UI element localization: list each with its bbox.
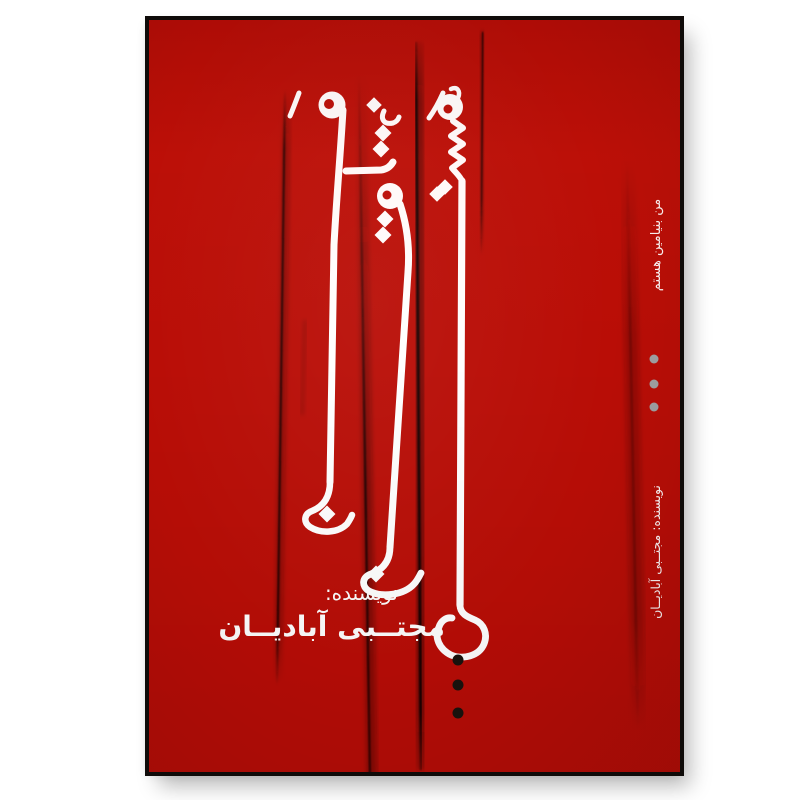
calligraphy-mid-bar [346,162,393,171]
book-cover-poster: من بنیامین هستم نویسنده: مجتــبی آبادیــ… [149,20,680,772]
calligraphy-mid-hook [382,111,399,123]
calligraphy-left-bowl [305,482,352,532]
calligraphy-mid-stroke [390,204,409,547]
calligraphy-right-stroke [460,181,462,605]
calligraphy-left-stroke [330,110,343,482]
calligraphy-right-teeth [451,121,463,181]
black-dots [453,655,464,719]
spine-bottom-text: نویسنده: مجتــبی آبادیــان [648,472,664,632]
poster-canvas: من بنیامین هستم نویسنده: مجتــبی آبادیــ… [149,20,680,772]
gray-dots [650,355,659,412]
product-image-page: { "page": { "background_color": "#ffffff… [0,0,800,800]
author-label: نویسنده: [325,581,398,605]
spine-top-text: من بنیامین هستم [649,197,665,293]
calligraphy-wedge-left [290,93,299,116]
title-calligraphy-artwork [149,20,680,772]
author-name: مجتــبی آبادیــان [218,610,445,643]
